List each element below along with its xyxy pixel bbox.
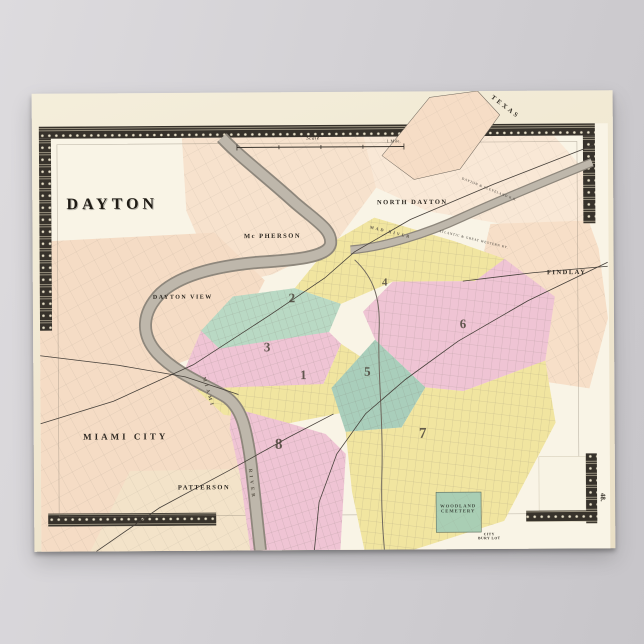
label-woodland-cemetery: WOODLAND CEMETERY (437, 504, 479, 514)
vintage-dayton-map-poster: DAYTON Mc PHERSON NORTH DAYTON TEXAS FIN… (32, 90, 616, 552)
ward-number-5: 5 (364, 364, 371, 380)
page-number: 48. (598, 493, 605, 502)
map-title: DAYTON (66, 197, 158, 214)
scale-label: Scale (306, 136, 319, 141)
ward-number-3: 3 (264, 339, 271, 355)
district-label-patterson: PATTERSON (178, 485, 230, 492)
ward-number-8: 8 (275, 437, 283, 454)
map-graphic (32, 90, 616, 552)
ward-number-2: 2 (289, 290, 296, 306)
ward-number-4: 4 (382, 277, 388, 289)
district-label-north-dayton: NORTH DAYTON (377, 200, 448, 207)
scale-unit-label: 1 Mile. (387, 139, 401, 143)
ward-number-6: 6 (460, 316, 467, 332)
district-label-findlay: FINDLAY (547, 270, 587, 277)
district-label-mcpherson: Mc PHERSON (244, 234, 301, 241)
ward-number-7: 7 (419, 426, 427, 443)
ward-number-1: 1 (300, 367, 307, 383)
district-label-miami-city: MIAMI CITY (83, 432, 168, 442)
label-city-bury-lot: CITY BURY LOT (477, 533, 501, 541)
product-backdrop: DAYTON Mc PHERSON NORTH DAYTON TEXAS FIN… (0, 0, 644, 644)
district-label-dayton-view: DAYTON VIEW (153, 295, 213, 302)
